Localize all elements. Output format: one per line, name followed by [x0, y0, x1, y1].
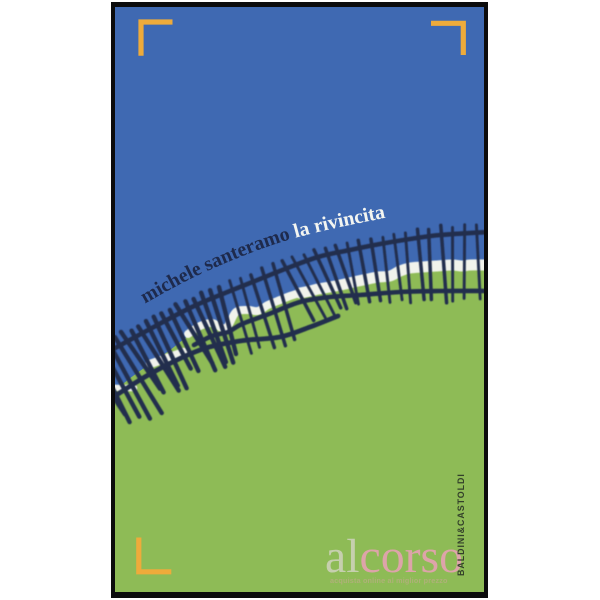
svg-text:BALDINI&CASTOLDI: BALDINI&CASTOLDI [456, 473, 466, 576]
svg-text:acquista online al miglior pre: acquista online al miglior prezzo [330, 576, 448, 585]
